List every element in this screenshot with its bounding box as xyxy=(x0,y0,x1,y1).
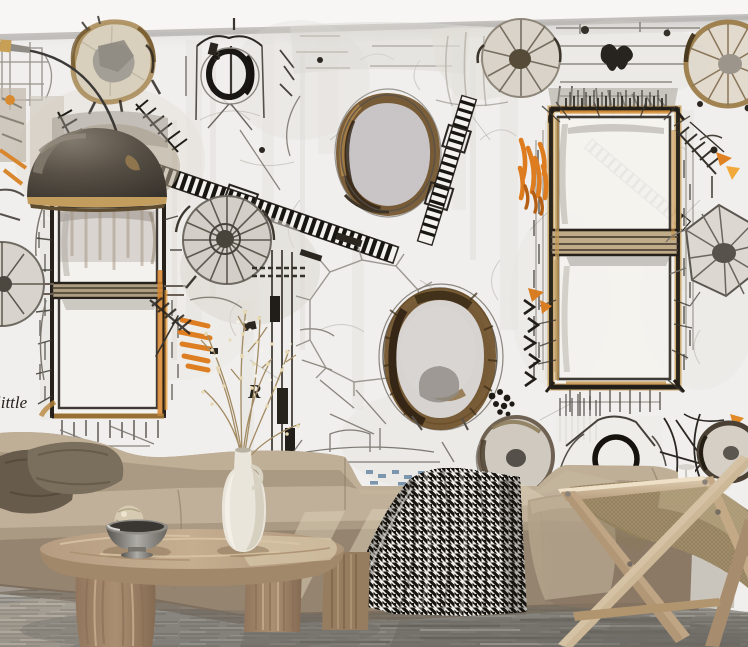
svg-text:little: little xyxy=(0,393,28,412)
